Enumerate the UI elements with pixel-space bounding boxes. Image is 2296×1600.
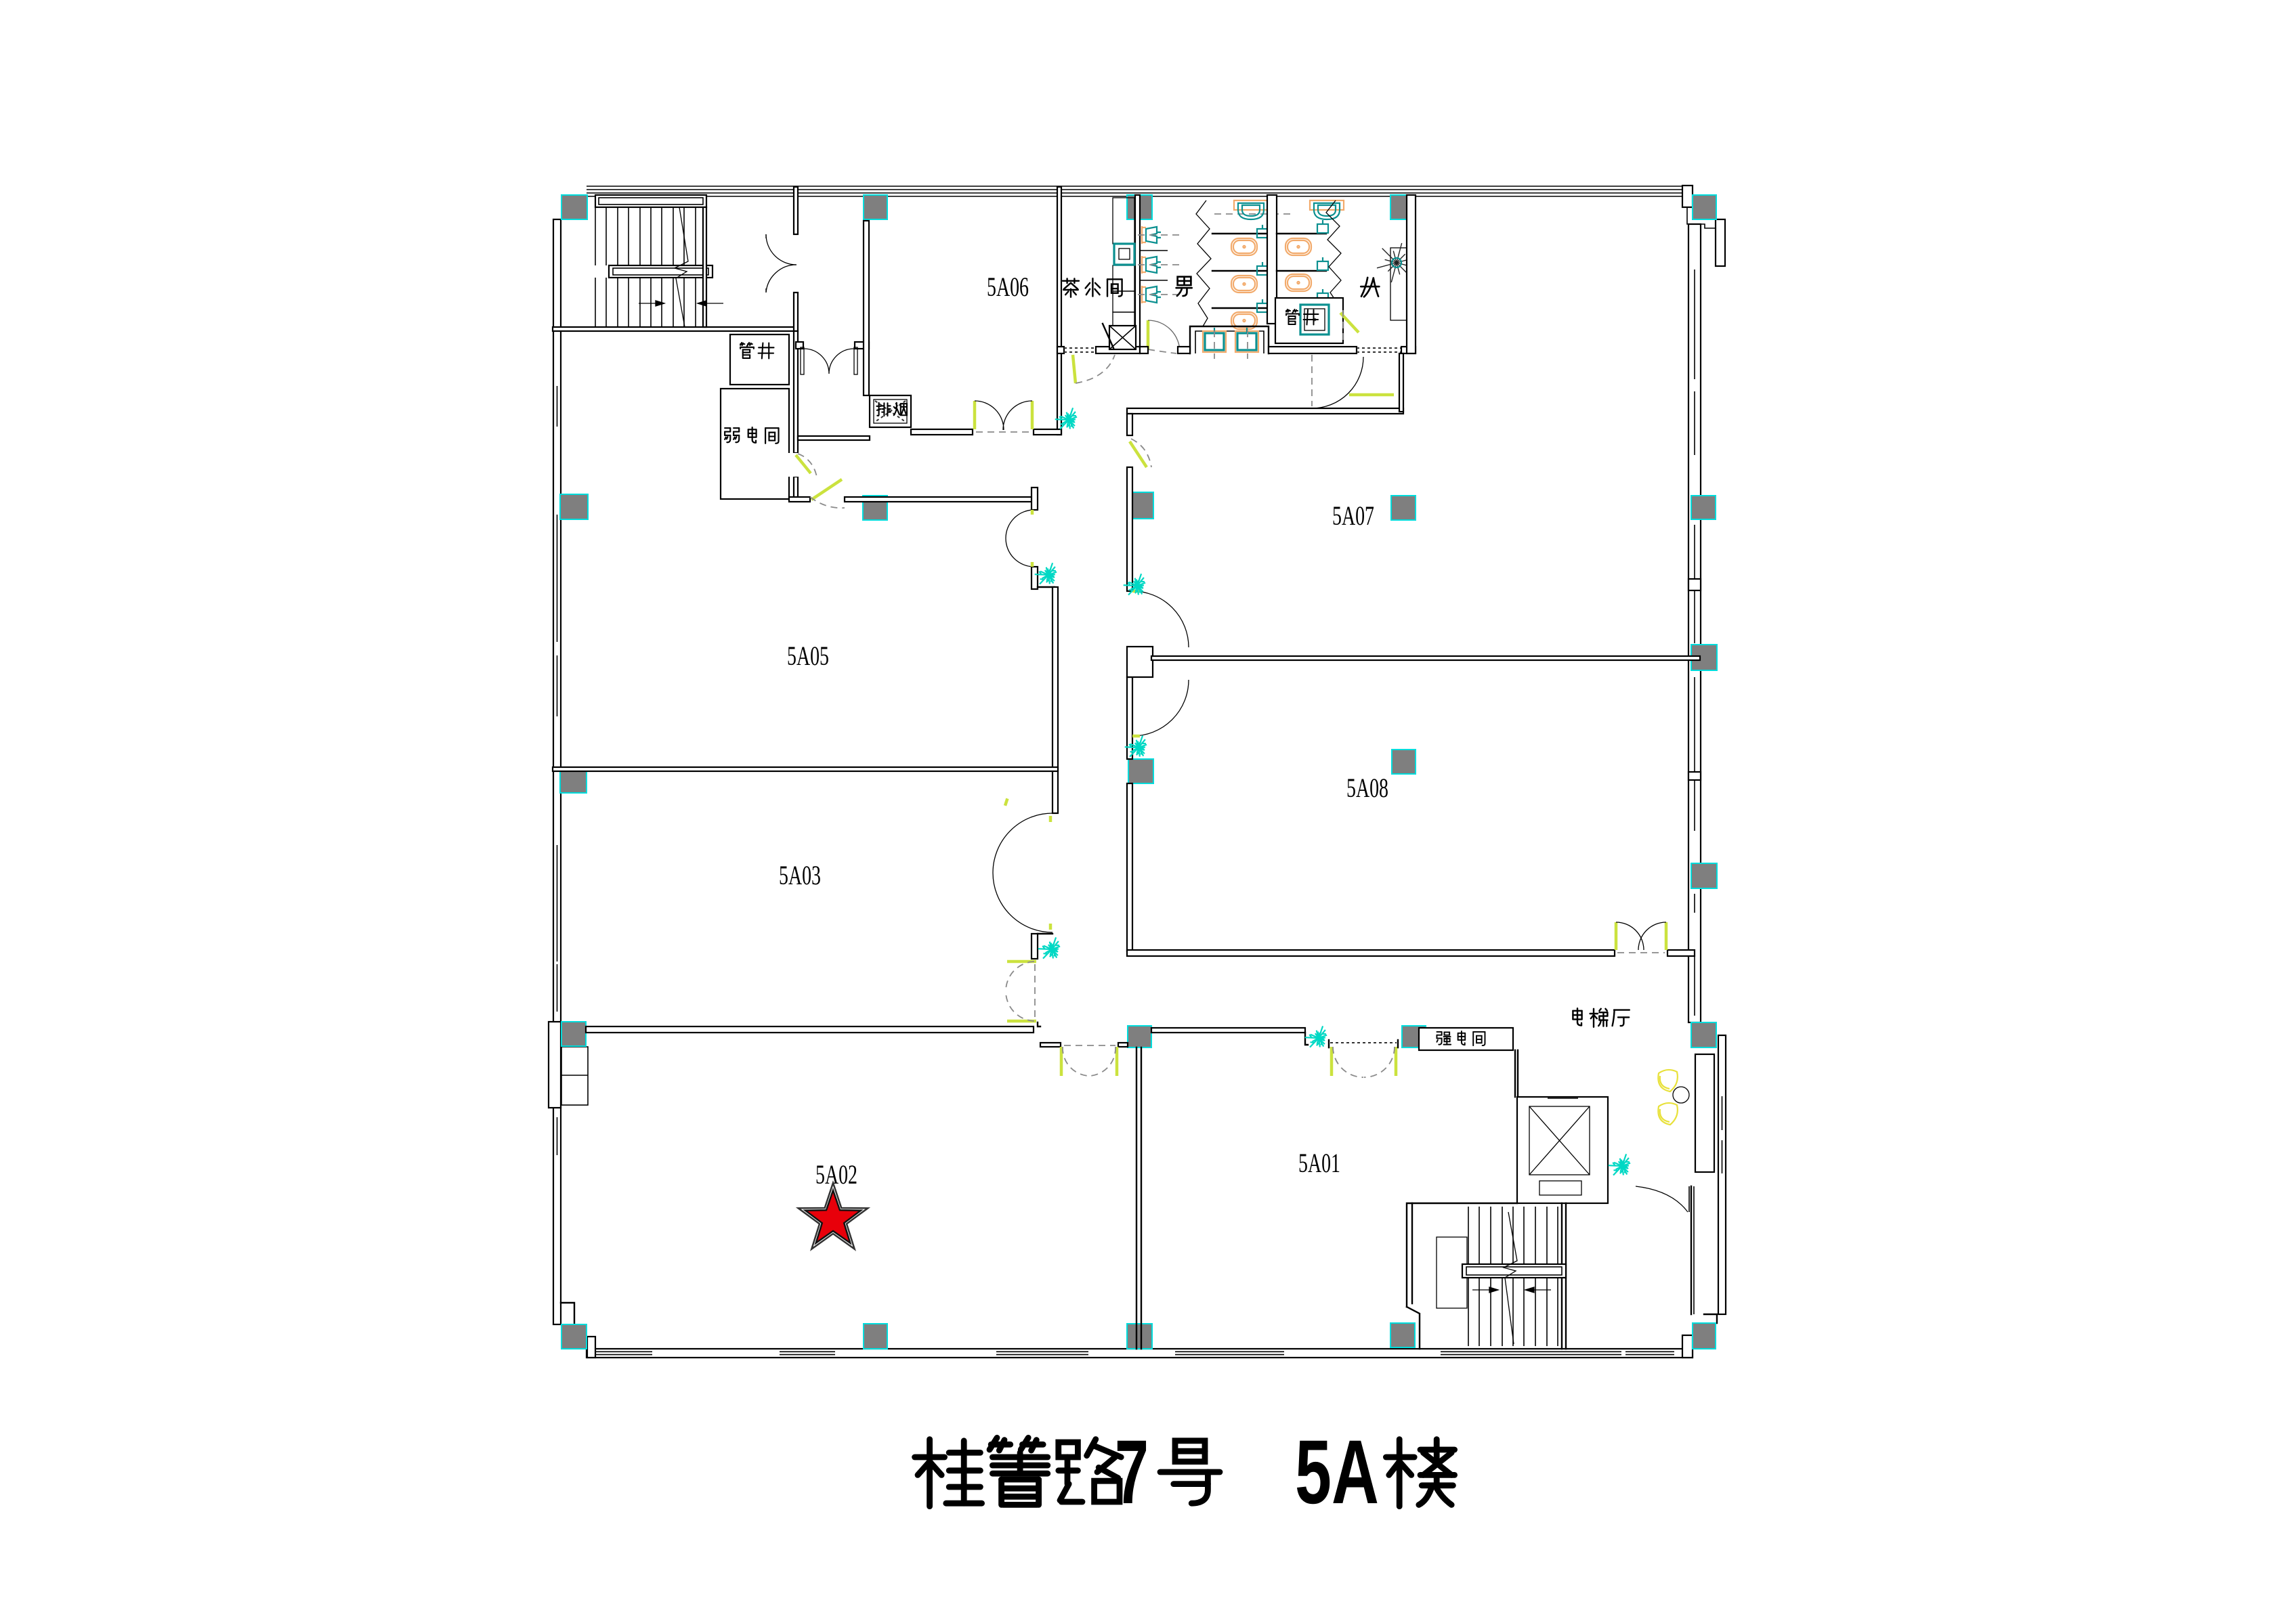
svg-text:5A07: 5A07 xyxy=(1332,500,1374,531)
svg-text:5A05: 5A05 xyxy=(787,641,829,671)
svg-text:5A06: 5A06 xyxy=(987,272,1029,302)
svg-text:5A03: 5A03 xyxy=(779,860,821,890)
svg-text:5A01: 5A01 xyxy=(1298,1148,1340,1178)
svg-text:5A02: 5A02 xyxy=(815,1159,857,1190)
svg-text:5A: 5A xyxy=(1295,1422,1379,1523)
svg-text:7: 7 xyxy=(1115,1422,1149,1523)
svg-text:5A08: 5A08 xyxy=(1346,773,1388,803)
